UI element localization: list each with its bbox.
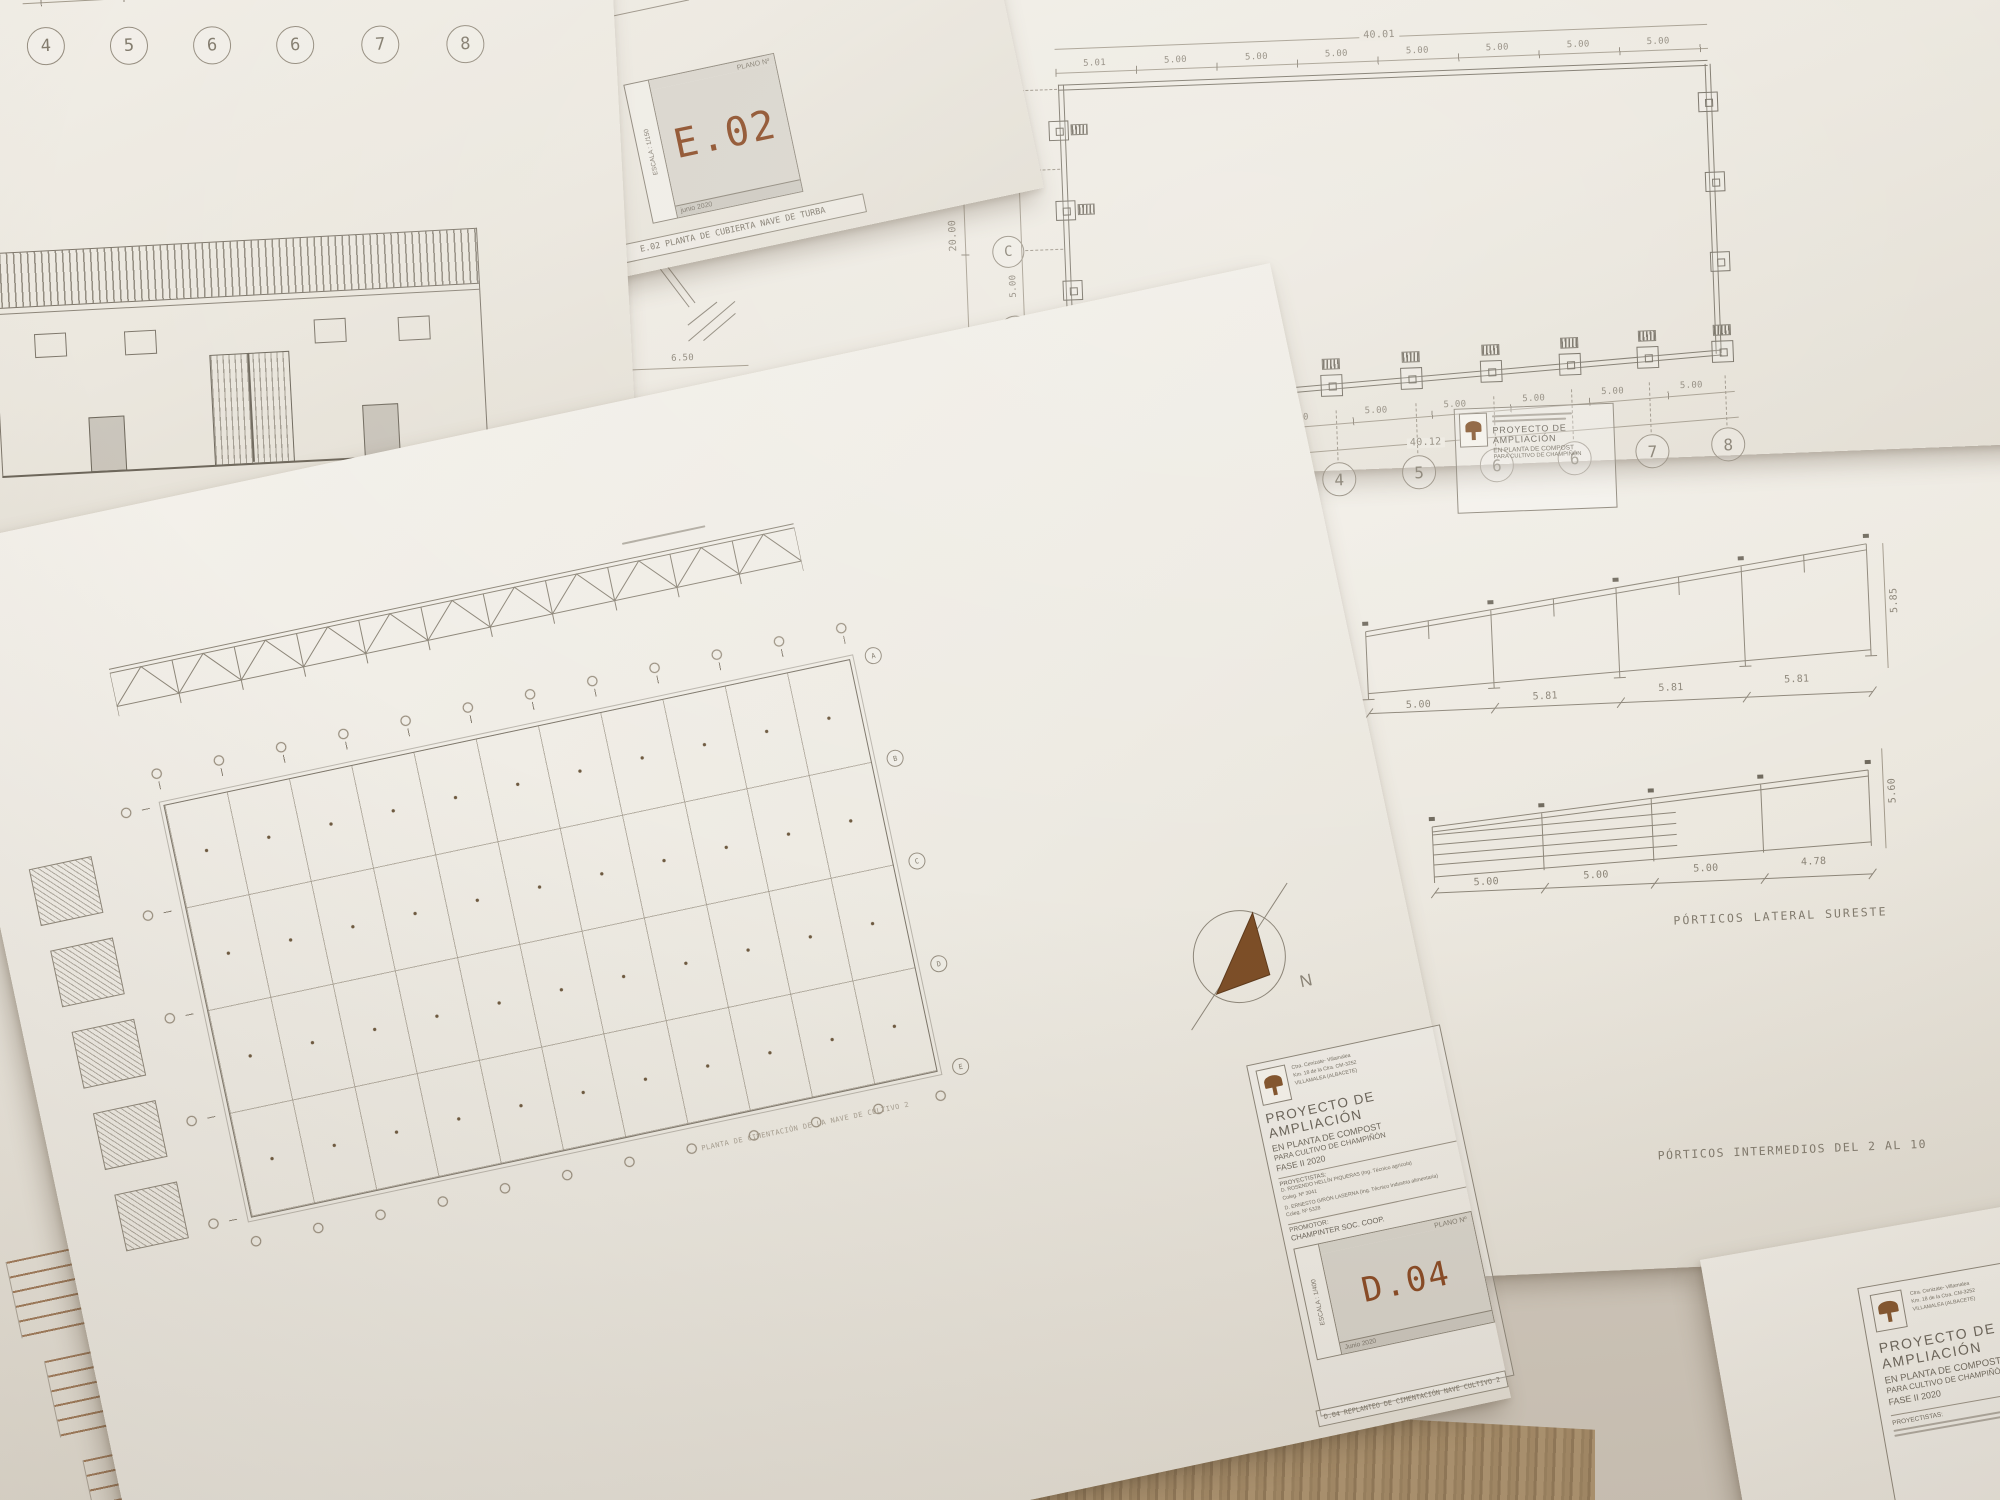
dim-seg: 5.00	[1164, 56, 1187, 66]
pier-hatch	[1481, 344, 1499, 356]
title-block: Ctra. Cenizate- Villamalea Km. 18 de la …	[1857, 1236, 2000, 1500]
dim-seg: 5.00	[1486, 43, 1509, 53]
dim-total-top: 40.01	[1359, 30, 1399, 42]
dim-label: 6.50	[671, 354, 694, 364]
pier	[1062, 280, 1083, 301]
dim-label: 5.81	[1784, 674, 1810, 685]
dim-seg: 5.00	[1647, 37, 1670, 47]
footing-detail	[29, 856, 104, 926]
dim-label: 5.00	[1406, 700, 1432, 711]
dim-seg: 5.01	[1083, 59, 1106, 69]
dim-label: 5.00	[1583, 870, 1609, 881]
photo-blueprints-scene: 5.00 5.81 5.81 5.81 5.85 PÓRTICOS LATERA…	[0, 0, 2000, 1500]
pier-hatch	[1560, 337, 1578, 349]
dim-height-label: 5.85	[1889, 587, 1900, 613]
window	[314, 318, 347, 344]
grid-bubble-col: 6	[192, 25, 232, 65]
dim-label: 4.78	[1801, 857, 1827, 868]
pier	[1559, 353, 1582, 376]
dim-seg: 5.00	[1325, 50, 1348, 60]
pier-hatch	[1070, 124, 1087, 136]
pier-hatch	[1078, 203, 1095, 215]
grid-bubble-letter: A	[863, 646, 883, 666]
pier-hatch	[1322, 358, 1340, 370]
grid-dash	[1025, 249, 1063, 251]
dim-label: 5.00	[1693, 864, 1719, 875]
plano-box: ESCALA : 1/150 PLANO Nº E.02 junio 2020	[623, 53, 803, 224]
portico-lateral-drawing	[1353, 513, 1881, 735]
champinter-logo-icon	[1870, 1290, 1908, 1333]
footing-detail	[93, 1100, 168, 1170]
grid-bubble-col: 7	[360, 25, 400, 65]
portico-intermedio-caption: PÓRTICOS INTERMEDIOS DEL 2 AL 10	[1657, 1139, 1927, 1162]
north-arrow-icon: N	[1156, 870, 1334, 1048]
pier	[1698, 91, 1719, 112]
pier-hatch	[1638, 330, 1656, 342]
dim-seg: 5.00	[1522, 394, 1545, 404]
pier	[1711, 340, 1734, 363]
grid-bubble-letter: E	[951, 1056, 971, 1076]
grid-bubble-letter: D	[929, 954, 949, 974]
dim-label: 5.81	[1658, 683, 1684, 694]
pier	[1320, 374, 1343, 397]
champinter-logo-icon	[1255, 1064, 1292, 1105]
grid-bubble-col: 5	[109, 26, 149, 66]
escala-label: ESCALA : 1/400	[1310, 1278, 1327, 1325]
grid-bubble-col: 4	[26, 26, 66, 66]
window	[398, 315, 431, 341]
grid-bubble-letter: B	[885, 748, 905, 768]
title-block-small: PROYECTO DE AMPLIACIÓN EN PLANTA DE COMP…	[1454, 403, 1618, 514]
pier	[1710, 251, 1731, 272]
dim-label: 5.00	[1473, 877, 1499, 888]
dim-left-total: 20.00	[948, 220, 959, 252]
facade-elevation-drawing	[0, 228, 489, 478]
grid-bubble-col: 8	[445, 24, 485, 64]
dim-label: 5.81	[1532, 691, 1558, 702]
pier	[1705, 171, 1726, 192]
dim-seg: 5.00	[1680, 381, 1703, 391]
dim-height-label: 5.60	[1887, 778, 1898, 804]
pier	[1480, 360, 1503, 383]
pier	[1048, 120, 1069, 141]
escala-label: ESCALA : 1/150	[642, 128, 659, 175]
grid-bubble-col: 6	[275, 25, 315, 65]
pier	[1400, 367, 1423, 390]
dim-seg: 5.00	[1365, 406, 1388, 416]
footing-detail	[72, 1019, 147, 1089]
dim-line	[1882, 543, 1888, 668]
champinter-logo-icon	[1459, 413, 1488, 448]
window	[124, 330, 157, 356]
window	[34, 332, 67, 358]
dim-seg: 5.00	[1245, 53, 1268, 63]
dim-total-bottom: 40.12	[1407, 437, 1445, 448]
pier-hatch	[1713, 324, 1731, 336]
pier-hatch	[1401, 351, 1419, 363]
dim-line	[1881, 748, 1886, 848]
dim-seg: 5.00	[1406, 47, 1429, 57]
pier	[1055, 200, 1076, 221]
door	[88, 416, 127, 473]
dim-seg: 5.00	[1567, 40, 1590, 50]
dim-ticks	[40, 0, 540, 6]
portico-lateral-caption: PÓRTICOS LATERAL SURESTE	[1673, 906, 1887, 927]
dim-seg: 5.00	[1601, 387, 1624, 397]
footing-detail	[114, 1181, 189, 1251]
footing-detail	[50, 937, 125, 1007]
grid-bubble-letter: C	[907, 851, 927, 871]
dim-left-inner: 5.00	[1009, 274, 1019, 297]
pier	[1636, 346, 1659, 369]
